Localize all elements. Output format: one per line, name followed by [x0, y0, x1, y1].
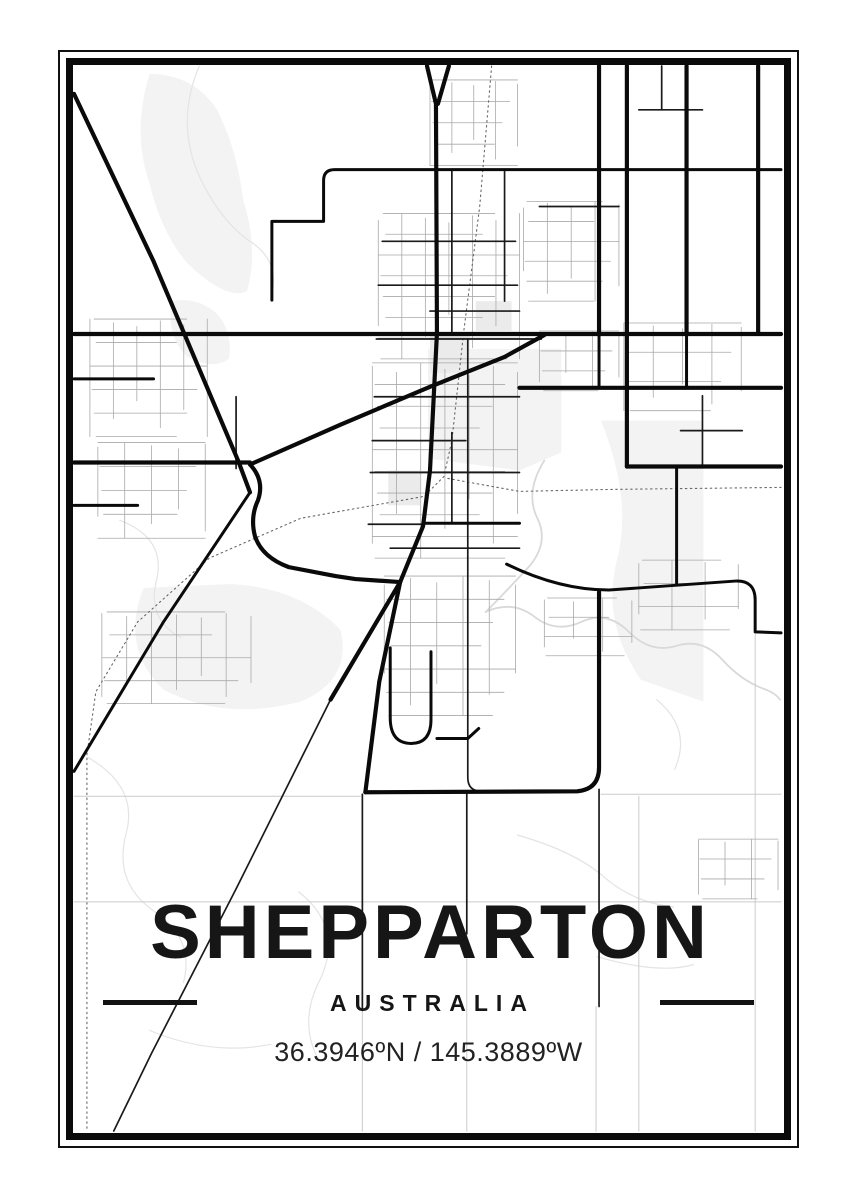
poster-frame-inner — [66, 58, 791, 1140]
map-poster: SHEPPARTON AUSTRALIA 36.3946ºN / 145.388… — [0, 0, 857, 1200]
